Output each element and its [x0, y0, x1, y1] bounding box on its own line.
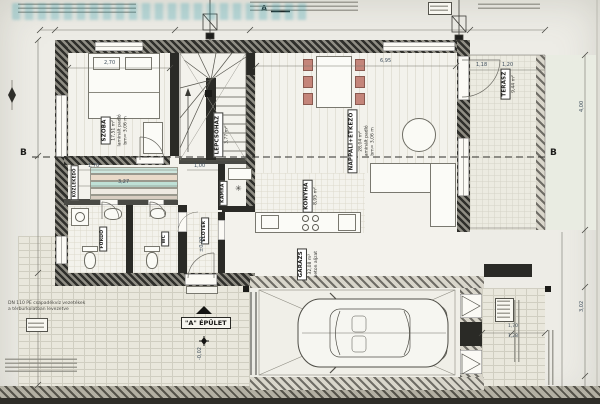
dim-text: 6,95 [380, 59, 391, 64]
dim-text: 3,27 [118, 180, 129, 185]
pillow [125, 57, 152, 70]
door-entry-east [218, 220, 225, 240]
window-west-bath [56, 236, 67, 264]
pantry-shelf [228, 168, 252, 180]
door-main-entry [185, 274, 217, 285]
garage-pillar-east [460, 322, 482, 346]
opening-entry-west [178, 212, 187, 232]
compass-icon [8, 80, 16, 110]
wall-pantry-south [222, 206, 255, 212]
window-north-living [383, 42, 455, 51]
dining-chair [355, 76, 365, 88]
blanket-line [89, 92, 159, 93]
entry-step [186, 286, 218, 294]
dim-text: 1,18 [476, 63, 487, 68]
wardrobe-row [90, 188, 178, 195]
window-north-bedroom [95, 42, 143, 51]
watermark [12, 3, 307, 20]
sofa-corner [430, 163, 456, 227]
dining-chair [303, 76, 313, 88]
dining-chair [355, 59, 365, 71]
dim-text: 3,02 [580, 301, 585, 312]
wardrobe-row [90, 181, 178, 188]
equipment-tag-lines [497, 300, 510, 318]
dim-text: 2,70 [104, 61, 115, 66]
street-edge-dark [0, 398, 600, 404]
section-b-right: B [550, 149, 557, 158]
stove-burner [312, 215, 319, 222]
dining-table [316, 56, 352, 108]
terrace-paving [470, 55, 545, 230]
wardrobe-row [90, 195, 178, 200]
stove-burner [302, 224, 309, 231]
wall-stairs-living [246, 75, 255, 206]
fridge [338, 214, 356, 231]
drain-note: DN 110 PE csapadékvíz vezetékek a térbur… [8, 301, 85, 312]
door-bedroom [136, 157, 164, 164]
garage-wall-north [250, 276, 484, 288]
dim-text: 1,70 [88, 164, 99, 169]
dining-chair [303, 59, 313, 71]
window-west-bedroom [56, 95, 67, 157]
wall-stairs-living-top [246, 53, 255, 75]
washbasin [104, 208, 122, 220]
side-note-blurred [548, 330, 556, 385]
side-lawn [546, 55, 596, 230]
stove-burner [312, 224, 319, 231]
wall-bath-wc [126, 205, 133, 273]
wc-bowl [84, 252, 96, 269]
garage-wall-south [250, 377, 484, 390]
drain-note-line1: DN 110 PE csapadékvíz vezetékek [8, 301, 85, 307]
drain-note-line2: a térburkolatban levezetve [8, 307, 85, 313]
wall-south-west [55, 273, 255, 286]
retaining-wall [484, 264, 532, 277]
dining-chair [303, 93, 313, 105]
dining-chair [355, 93, 365, 105]
wall-bedroom-stairs [170, 53, 179, 156]
garage-floor [256, 288, 460, 377]
level-marker: ±0,00 [200, 237, 205, 252]
wardrobe-row [90, 174, 178, 181]
garage-side-door-1 [460, 294, 482, 318]
stove-burner [302, 215, 309, 222]
wardrobe [143, 122, 163, 154]
terrace-east-pillar [536, 55, 545, 230]
door-east-terrace [458, 56, 469, 100]
garage-side-door-2 [460, 350, 482, 374]
round-table [402, 118, 436, 152]
tag-box-lines [430, 4, 448, 11]
top-note-blurred [478, 1, 540, 9]
living-floor [255, 53, 457, 173]
level-tag-lines [28, 320, 44, 328]
note-block-blurred [5, 356, 77, 372]
level-marker: -0,02 [198, 347, 203, 360]
washing-machine-drum [75, 212, 85, 222]
kitchen-sink [261, 215, 279, 229]
wardrobe-row [90, 167, 178, 174]
wall-stairs-south [179, 158, 246, 164]
dim-text: 4,00 [580, 101, 585, 112]
wall-pantry-west [218, 164, 225, 210]
window-east-living [458, 138, 469, 196]
section-b-left: B [20, 149, 27, 158]
vent-icon: ✳ [235, 184, 242, 194]
building-label: "A" ÉPÜLET [181, 317, 231, 329]
wc-bowl [146, 252, 158, 269]
dim-text: 1,00 [194, 164, 205, 169]
dim-text: 1,20 [502, 63, 513, 68]
side-note-blurred [514, 300, 522, 362]
floorplan-scan: ✳ [0, 0, 600, 404]
washbasin [150, 208, 166, 219]
